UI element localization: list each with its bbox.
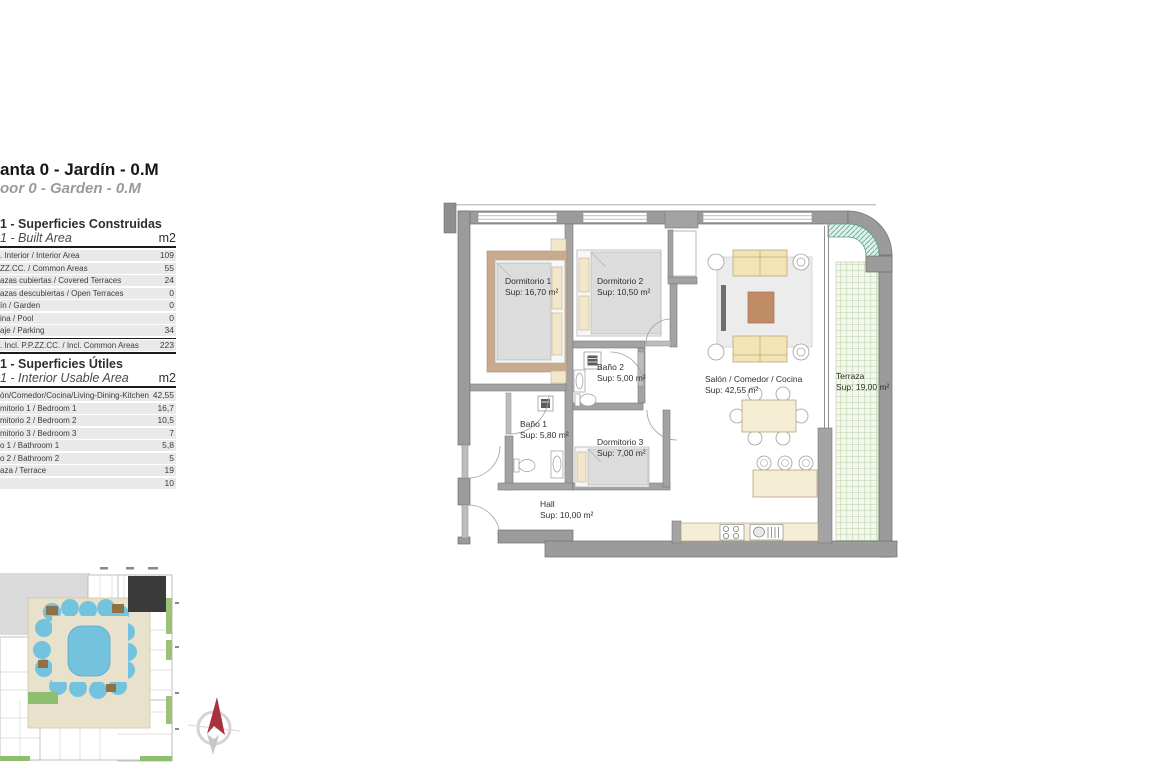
kitchen-counter-icon: [681, 523, 818, 541]
north-compass-icon: [186, 694, 242, 758]
table-row: azas cubiertas / Covered Terraces24: [0, 275, 176, 286]
table-row: mitorio 2 / Bedroom 210,5: [0, 415, 176, 426]
site-plan-minimap: [0, 563, 180, 765]
room-label-hall: HallSup: 10,00 m²: [540, 499, 593, 521]
built-area-table: 1 - Superficies Construidas 1 - Built Ar…: [0, 217, 176, 356]
shaft-closet: [673, 231, 696, 276]
table-subtitle-text: 1 - Interior Usable Area: [0, 371, 129, 385]
sofa-icon: [733, 250, 787, 276]
table-row: ón/Comedor/Cocina/Living-Dining-Kitchen4…: [0, 390, 176, 401]
room-label-dormitorio-1: Dormitorio 1Sup: 16,70 m²: [505, 276, 558, 298]
room-label-dormitorio-3: Dormitorio 3Sup: 7,00 m²: [597, 437, 646, 459]
table-subtitle: 1 - Interior Usable Area m2: [0, 371, 176, 385]
minimap-courtyard-pool: [28, 598, 150, 728]
minimap-highlighted-unit: [128, 576, 166, 612]
table-row: aje / Parking34: [0, 325, 176, 336]
page-title: anta 0 - Jardín - 0.M: [0, 160, 159, 180]
coffee-table-icon: [748, 292, 774, 323]
page-subtitle: oor 0 - Garden - 0.M: [0, 180, 141, 197]
table-subtitle-text: 1 - Built Area: [0, 231, 72, 245]
table-row: mitorio 1 / Bedroom 116,7: [0, 403, 176, 414]
table-title: 1 - Superficies Construidas: [0, 217, 176, 231]
table-row: ZZ.CC. / Common Areas55: [0, 263, 176, 274]
table-row: ín / Garden0: [0, 300, 176, 311]
sink-icon: [750, 525, 783, 541]
table-rule: [0, 352, 176, 354]
bed-double-dormitorio1: [487, 239, 567, 383]
table-row: ina / Pool0: [0, 313, 176, 324]
table-total-row: . Incl. P.P.ZZ.CC. / Incl. Common Areas2…: [0, 340, 176, 351]
table-row: . Interior / Interior Area109: [0, 250, 176, 261]
table-row: o 1 / Bathroom 15,8: [0, 440, 176, 451]
glass-sliding-wall: [825, 226, 829, 428]
table-unit: m2: [159, 231, 176, 245]
room-label-salon: Salón / Comedor / CocinaSup: 42,55 m²: [705, 374, 802, 396]
exterior-pillar: [444, 203, 456, 233]
room-label-bano-2: Baño 2Sup: 5,00 m²: [597, 362, 646, 384]
floor-plan-page: anta 0 - Jardín - 0.M oor 0 - Garden - 0…: [0, 0, 1170, 775]
living-room-furniture: [708, 250, 812, 362]
table-rule: [0, 386, 176, 388]
terrace-lawn: [836, 262, 878, 543]
table-title: 1 - Superficies Útiles: [0, 357, 176, 371]
table-rule: [0, 246, 176, 248]
table-row: o 2 / Bathroom 25: [0, 453, 176, 464]
sofa-icon: [733, 336, 787, 362]
table-subtitle: 1 - Built Area m2: [0, 231, 176, 245]
roof-overhang-line: [456, 204, 876, 206]
room-label-dormitorio-2: Dormitorio 2Sup: 10,50 m²: [597, 276, 650, 298]
kitchen-island-icon: [753, 456, 817, 497]
table-unit: m2: [159, 371, 176, 385]
table-row: 10: [0, 478, 176, 489]
table-row: azas descubiertas / Open Terraces0: [0, 288, 176, 299]
table-row: mitorio 3 / Bedroom 37: [0, 428, 176, 439]
tv-icon: [721, 285, 726, 331]
stove-icon: [720, 525, 744, 541]
room-label-terraza: TerrazaSup: 19,00 m²: [836, 371, 889, 393]
usable-area-table: 1 - Superficies Útiles 1 - Interior Usab…: [0, 357, 176, 490]
window-openings: [478, 213, 812, 223]
table-row: aza / Terrace19: [0, 465, 176, 476]
table-rule: [0, 338, 176, 339]
room-label-bano-1: Baño 1Sup: 5,80 m²: [520, 419, 569, 441]
